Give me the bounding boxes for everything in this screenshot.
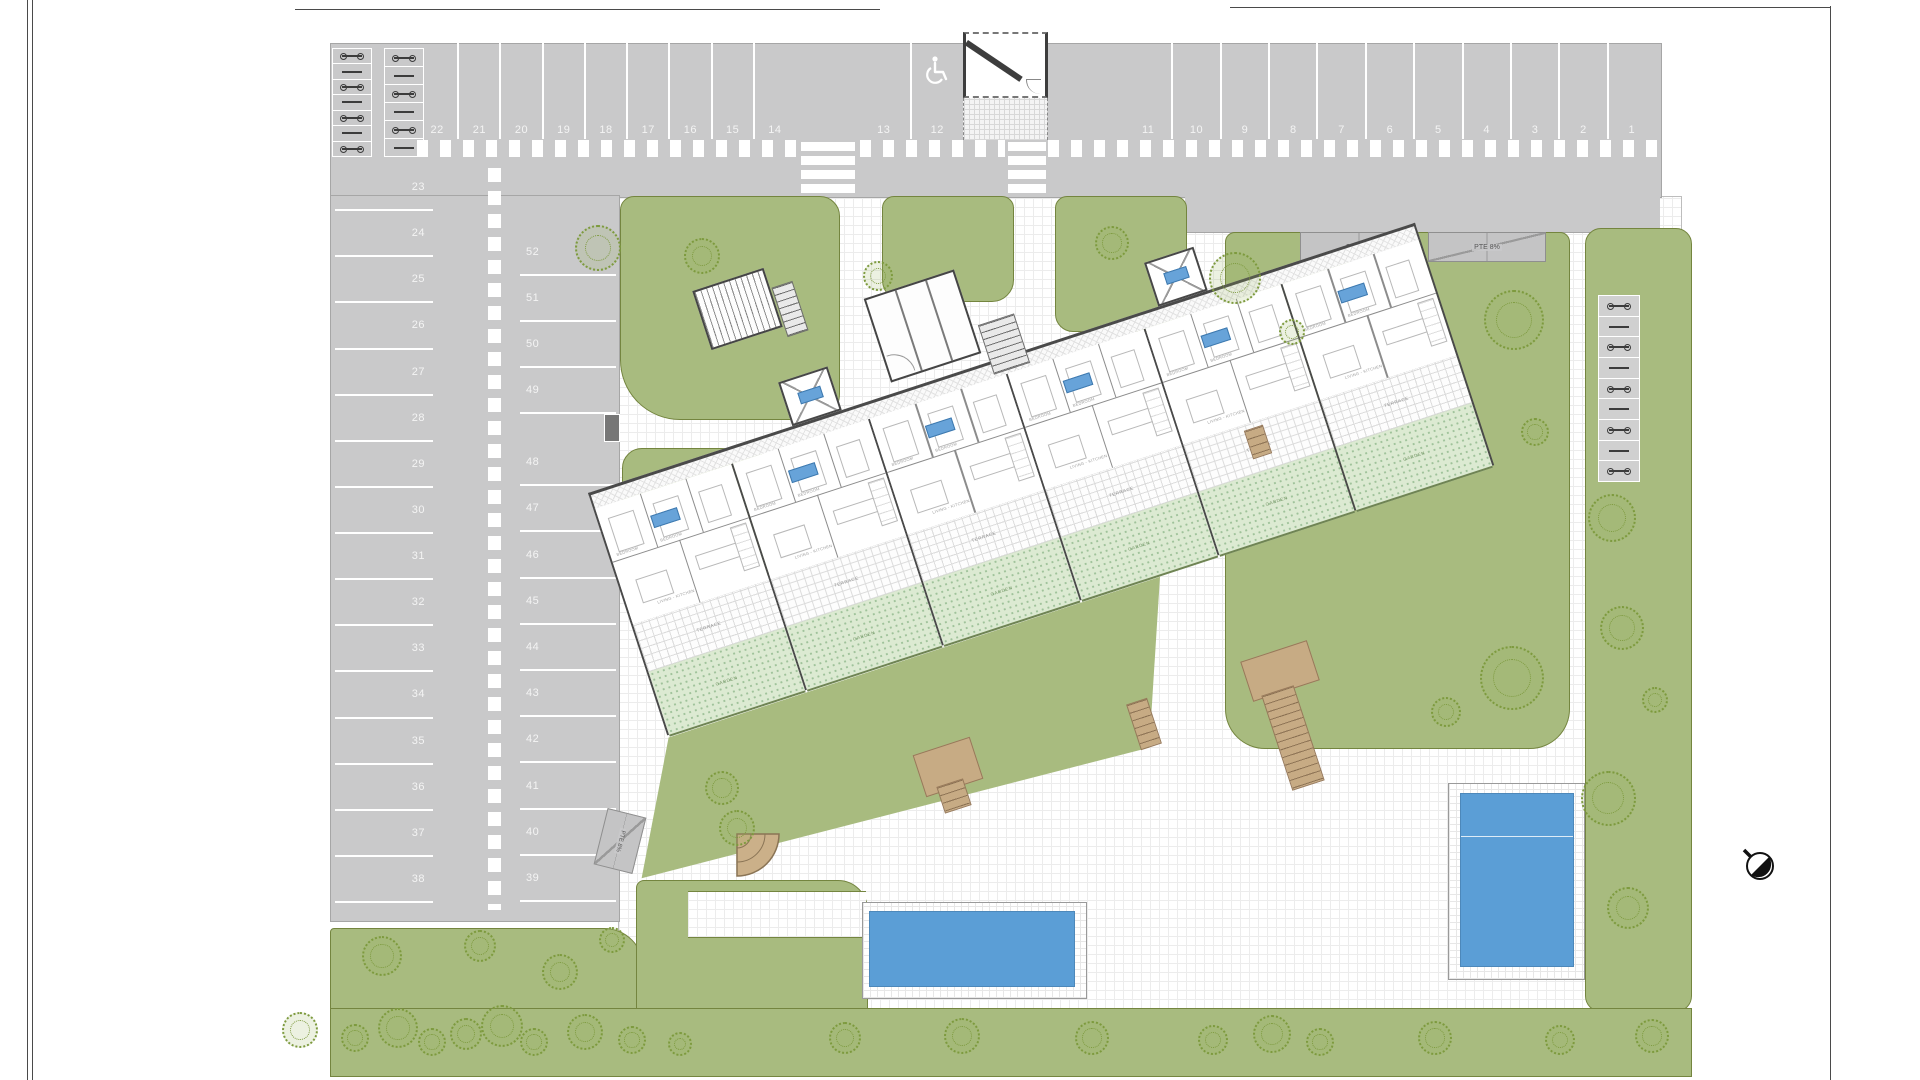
parking-space: 23 xyxy=(335,165,433,211)
tree-icon xyxy=(1306,1028,1334,1056)
parking-space: 41 xyxy=(520,763,616,809)
tree-icon xyxy=(575,225,621,271)
plan-graphic xyxy=(1425,1028,1444,1047)
plan-graphic xyxy=(961,389,980,443)
bed-furniture xyxy=(745,465,782,508)
rack-row xyxy=(333,111,371,126)
rack-row xyxy=(1599,420,1639,441)
parking-space-number: 51 xyxy=(526,292,539,304)
bed-furniture xyxy=(883,420,920,463)
parking-space-number: 4 xyxy=(1464,124,1510,136)
tree-icon xyxy=(863,261,893,291)
tree-icon xyxy=(684,238,720,274)
parking-space: 5 xyxy=(1413,43,1461,139)
pool-2 xyxy=(1460,793,1574,967)
plan-graphic xyxy=(424,1034,439,1049)
parking-space-number: 27 xyxy=(412,366,425,378)
parking-space-number: 21 xyxy=(459,124,499,136)
parking-space-number: 28 xyxy=(412,412,425,424)
bicycle-icon xyxy=(1609,388,1629,390)
plan-graphic xyxy=(1008,142,1046,151)
parking-space-number: 23 xyxy=(412,181,425,193)
parking-space: 19 xyxy=(542,43,584,139)
parking-space-number: 7 xyxy=(1318,124,1364,136)
parking-space: 30 xyxy=(335,488,433,534)
tree-icon xyxy=(1484,290,1544,350)
parking-space-number: 37 xyxy=(412,827,425,839)
rack-row xyxy=(1599,379,1639,400)
parking-space: 29 xyxy=(335,442,433,488)
bed-furniture xyxy=(1158,330,1195,373)
plan-graphic xyxy=(935,63,946,79)
rack-row xyxy=(1599,461,1639,481)
parking-space-number: 10 xyxy=(1173,124,1219,136)
bicycle-icon xyxy=(342,117,362,119)
parking-space: 34 xyxy=(335,672,433,718)
rack-row xyxy=(333,142,371,156)
frame-top-left xyxy=(295,9,880,10)
parking-space-number: 12 xyxy=(912,124,964,136)
rack-row xyxy=(333,64,371,79)
plan-graphic xyxy=(1008,170,1046,179)
parking-space: 48 xyxy=(520,440,616,486)
tree-icon xyxy=(1600,606,1644,650)
plan-graphic xyxy=(712,778,731,797)
parking-space-number: 33 xyxy=(412,642,425,654)
plan-graphic xyxy=(1026,79,1041,94)
parking-space-number: 35 xyxy=(412,735,425,747)
tree-icon xyxy=(599,927,625,953)
parking-row-top-right: 1110987654321 xyxy=(1125,43,1655,139)
table-furniture xyxy=(1386,259,1420,298)
parking-space-number: 14 xyxy=(755,124,795,136)
parking-space-number: 32 xyxy=(412,596,425,608)
rack-row xyxy=(385,67,423,85)
plan-graphic xyxy=(1008,184,1046,193)
parking-space-number: 48 xyxy=(526,456,539,468)
parking-space-number: 40 xyxy=(526,826,539,838)
frame-right xyxy=(1830,6,1831,1080)
tree-icon xyxy=(1209,252,1261,304)
table-furniture xyxy=(973,394,1007,433)
table-furniture xyxy=(836,439,870,478)
ramp-label-2: PTE 8% xyxy=(1472,244,1502,251)
parking-space-number: 26 xyxy=(412,319,425,331)
parking-space-number: 16 xyxy=(670,124,710,136)
plan-graphic xyxy=(290,1020,311,1041)
plan-graphic xyxy=(386,1016,409,1039)
rack-mark xyxy=(394,111,414,113)
parking-space-number: 49 xyxy=(526,384,539,396)
bed-furniture xyxy=(608,510,645,553)
plan-graphic xyxy=(801,156,855,165)
parking-space: 31 xyxy=(335,534,433,580)
parking-space-number: 29 xyxy=(412,458,425,470)
parking-space-number: 1 xyxy=(1609,124,1655,136)
table-furniture xyxy=(1111,349,1145,388)
tree-icon xyxy=(618,1026,646,1054)
parking-space: 3 xyxy=(1510,43,1558,139)
bicycle-icon xyxy=(342,148,362,150)
plan-graphic xyxy=(1496,302,1532,338)
parking-space-number: 2 xyxy=(1560,124,1606,136)
table-furniture xyxy=(698,484,732,523)
plan-graphic xyxy=(1098,344,1117,398)
plan-graphic xyxy=(1373,254,1392,308)
plan-graphic xyxy=(585,235,612,262)
road-top-right-extension xyxy=(1185,194,1660,233)
garden-label: GARDEN xyxy=(1070,521,1207,570)
plan-graphic xyxy=(674,1038,687,1051)
plan-graphic xyxy=(925,280,953,360)
bicycle-icon xyxy=(1609,470,1629,472)
parking-space-number: 6 xyxy=(1367,124,1413,136)
plan-graphic xyxy=(801,142,855,151)
plan-graphic xyxy=(1261,1023,1283,1045)
parking-space: 44 xyxy=(520,625,616,671)
crosswalk-zebra-right xyxy=(1048,140,1657,157)
plan-graphic xyxy=(870,268,887,285)
parking-space-number: 41 xyxy=(526,780,539,792)
rack-row xyxy=(1599,296,1639,317)
tree-icon xyxy=(464,930,496,962)
rack-row xyxy=(333,126,371,141)
frame-left-outer xyxy=(27,0,28,1080)
parking-space-number: 39 xyxy=(526,872,539,884)
plan-graphic xyxy=(1236,299,1255,353)
rack-mark xyxy=(342,132,362,134)
rack-row xyxy=(385,139,423,156)
plan-graphic xyxy=(1285,325,1299,339)
garden-label: GARDEN xyxy=(1208,476,1345,525)
plan-graphic xyxy=(1616,896,1640,920)
rack-row xyxy=(385,103,423,121)
parking-space: 2 xyxy=(1558,43,1606,139)
site-plan: 222120191817161514 1312 1110987654321 23… xyxy=(0,0,1920,1080)
north-arrow-icon xyxy=(1740,846,1776,882)
tree-icon xyxy=(1521,418,1549,446)
tree-icon xyxy=(1545,1025,1575,1055)
parking-space: 38 xyxy=(335,857,433,903)
parking-space: 49 xyxy=(520,368,616,414)
bicycle-icon xyxy=(1609,305,1629,307)
parking-space: 20 xyxy=(499,43,541,139)
parking-space: 18 xyxy=(584,43,626,139)
parking-space-number: 3 xyxy=(1512,124,1558,136)
plan-graphic xyxy=(1205,1032,1222,1049)
parking-space-number: 45 xyxy=(526,595,539,607)
stair-core-badge xyxy=(797,386,824,405)
kiosk-apron xyxy=(963,98,1048,140)
parking-column-left: 23242526272829303132333435363738 xyxy=(335,165,433,903)
plan-graphic xyxy=(1642,1026,1661,1045)
rack-mark xyxy=(394,75,414,77)
tree-icon xyxy=(450,1018,482,1050)
rack-row xyxy=(385,121,423,139)
garden-label: GARDEN xyxy=(795,611,932,660)
rack-mark xyxy=(1609,408,1629,410)
parking-space-number: 50 xyxy=(526,338,539,350)
parking-space: 45 xyxy=(520,579,616,625)
parking-row-top-left: 222120191817161514 xyxy=(417,43,795,139)
pool-1 xyxy=(869,911,1075,987)
rack-row xyxy=(1599,317,1639,338)
rack-mark xyxy=(342,101,362,103)
plan-graphic xyxy=(1438,704,1455,721)
rack-row xyxy=(1599,441,1639,462)
bicycle-icon xyxy=(394,93,414,95)
bed-furniture xyxy=(1020,375,1057,418)
plan-graphic xyxy=(370,944,393,967)
rack-mark xyxy=(342,71,362,73)
plan-graphic xyxy=(727,818,748,839)
wheelchair-icon xyxy=(924,55,950,85)
garden-label: GARDEN xyxy=(658,656,795,705)
plan-graphic xyxy=(1082,1028,1101,1047)
plan-graphic xyxy=(1527,424,1542,439)
rack-row xyxy=(333,95,371,110)
plan-graphic xyxy=(575,1022,596,1043)
plan-graphic xyxy=(490,1014,514,1038)
tree-icon xyxy=(418,1028,446,1056)
tree-icon xyxy=(1642,687,1668,713)
parking-space-number: 44 xyxy=(526,641,539,653)
tree-icon xyxy=(668,1032,692,1056)
plan-graphic xyxy=(1102,233,1121,252)
parking-space-number: 8 xyxy=(1270,124,1316,136)
plan-graphic xyxy=(1609,615,1635,641)
parking-space: 50 xyxy=(520,322,616,368)
parking-space: 14 xyxy=(753,43,795,139)
rack-mark xyxy=(1609,367,1629,369)
plan-graphic xyxy=(952,1026,973,1047)
parking-space-number: 18 xyxy=(586,124,626,136)
tree-icon xyxy=(944,1018,980,1054)
tree-icon xyxy=(1635,1019,1669,1053)
tree-icon xyxy=(1480,646,1544,710)
tree-icon xyxy=(1431,697,1461,727)
parking-space: 43 xyxy=(520,671,616,717)
plan-graphic xyxy=(347,1030,362,1045)
bicycle-icon xyxy=(1609,429,1629,431)
tree-icon xyxy=(481,1005,523,1047)
plan-graphic xyxy=(1592,782,1625,815)
plan-graphic xyxy=(526,1034,541,1049)
garden-label: GARDEN xyxy=(1345,431,1482,480)
parking-space: 1 xyxy=(1607,43,1655,139)
garden-label: GARDEN xyxy=(933,566,1070,615)
parking-space-number: 24 xyxy=(412,227,425,239)
rack-mark xyxy=(1609,326,1629,328)
parking-space: 32 xyxy=(335,580,433,626)
parking-space: 33 xyxy=(335,626,433,672)
plan-graphic xyxy=(692,246,713,267)
tree-icon xyxy=(378,1008,418,1048)
tree-icon xyxy=(1095,226,1129,260)
tree-icon xyxy=(341,1024,369,1052)
bicycle-icon xyxy=(342,55,362,57)
crosswalk-zebra-mid xyxy=(860,140,1005,157)
tree-icon xyxy=(520,1028,548,1056)
plan-graphic xyxy=(1461,836,1573,837)
parking-space: 42 xyxy=(520,717,616,763)
parking-space: 24 xyxy=(335,211,433,257)
plan-graphic xyxy=(1008,156,1046,165)
plan-graphic xyxy=(963,32,1048,98)
parking-space-number: 30 xyxy=(412,504,425,516)
tree-icon xyxy=(1253,1015,1291,1053)
bike-rack-column-1 xyxy=(332,48,372,157)
parking-space-number: 9 xyxy=(1222,124,1268,136)
table-furniture xyxy=(1248,304,1282,343)
parking-space-number: 52 xyxy=(526,246,539,258)
parking-space: 6 xyxy=(1365,43,1413,139)
parking-space: 7 xyxy=(1316,43,1364,139)
parking-space-number: 25 xyxy=(412,273,425,285)
bicycle-icon xyxy=(394,129,414,131)
plan-graphic xyxy=(605,933,619,947)
plan-graphic xyxy=(823,434,842,488)
rack-row xyxy=(333,49,371,64)
plan-graphic xyxy=(624,1032,639,1047)
road-centre-dashed-line xyxy=(488,168,501,910)
parking-space: 16 xyxy=(668,43,710,139)
parking-space-number: 38 xyxy=(412,873,425,885)
tree-icon xyxy=(1588,494,1636,542)
parking-row-top-mid: 1312 xyxy=(858,43,963,139)
parking-space-number: 34 xyxy=(412,688,425,700)
parking-space: 4 xyxy=(1462,43,1510,139)
bike-rack-column-2 xyxy=(384,48,424,157)
plan-graphic xyxy=(886,349,915,378)
parking-space-number: 36 xyxy=(412,781,425,793)
crosswalk-zebra-left xyxy=(417,140,797,157)
parking-space-number: 5 xyxy=(1415,124,1461,136)
plan-graphic xyxy=(1648,693,1662,707)
parking-space-number: 43 xyxy=(526,687,539,699)
parking-space: 21 xyxy=(457,43,499,139)
tree-icon xyxy=(1581,771,1636,826)
plan-graphic xyxy=(1493,659,1531,697)
parking-space-number: 46 xyxy=(526,549,539,561)
bed-furniture xyxy=(1295,285,1332,328)
tree-icon xyxy=(282,1012,318,1048)
plan-graphic xyxy=(836,1029,854,1047)
tree-icon xyxy=(567,1014,603,1050)
rack-mark xyxy=(1609,450,1629,452)
tree-icon xyxy=(829,1022,861,1054)
parking-space: 10 xyxy=(1171,43,1219,139)
tree-icon xyxy=(705,771,739,805)
parking-space: 36 xyxy=(335,765,433,811)
tree-icon xyxy=(1075,1021,1109,1055)
rack-mark xyxy=(394,147,414,149)
parking-space: 26 xyxy=(335,303,433,349)
frame-left-inner xyxy=(32,0,33,1080)
barrier-gate xyxy=(604,414,620,442)
kiosk-ramp xyxy=(965,40,1023,82)
parking-space: 27 xyxy=(335,350,433,396)
plan-graphic xyxy=(1552,1032,1569,1049)
parking-space: 12 xyxy=(910,43,964,139)
ramp-label-3: PTE 8% xyxy=(614,828,626,855)
parking-space: 9 xyxy=(1220,43,1268,139)
plan-graphic xyxy=(1220,263,1251,294)
tree-icon xyxy=(1279,319,1305,345)
rack-row xyxy=(1599,358,1639,379)
bicycle-icon xyxy=(394,57,414,59)
parking-space-number: 31 xyxy=(412,550,425,562)
parking-space: 11 xyxy=(1125,43,1171,139)
parking-space-number: 13 xyxy=(858,124,910,136)
rack-row xyxy=(1599,337,1639,358)
tree-icon xyxy=(1418,1021,1452,1055)
plan-graphic xyxy=(457,1025,475,1043)
parking-space: 37 xyxy=(335,811,433,857)
parking-space-number: 11 xyxy=(1125,124,1171,136)
parking-space: 51 xyxy=(520,276,616,322)
tree-icon xyxy=(1607,887,1649,929)
plan-graphic xyxy=(801,170,855,179)
moto-stall-column xyxy=(1598,295,1640,482)
path-to-pool xyxy=(688,891,866,938)
parking-space-number: 20 xyxy=(501,124,541,136)
tree-icon xyxy=(542,954,578,990)
parking-space: 8 xyxy=(1268,43,1316,139)
parking-space: 35 xyxy=(335,719,433,765)
parking-space-number: 15 xyxy=(713,124,753,136)
parking-space-number: 17 xyxy=(628,124,668,136)
parking-space: 25 xyxy=(335,257,433,303)
plan-graphic xyxy=(1312,1034,1327,1049)
rack-row xyxy=(385,85,423,103)
bicycle-icon xyxy=(1609,346,1629,348)
tree-icon xyxy=(362,936,402,976)
plan-graphic xyxy=(933,56,938,61)
parking-space-number: 19 xyxy=(544,124,584,136)
frame-top-right xyxy=(1230,7,1830,8)
parking-space: 17 xyxy=(626,43,668,139)
parking-space-number: 42 xyxy=(526,733,539,745)
rack-row xyxy=(333,80,371,95)
ramp-east-2: PTE 8% xyxy=(1428,232,1546,262)
stair-core-badge xyxy=(1163,266,1190,285)
bicycle-icon xyxy=(342,86,362,88)
parking-space: 46 xyxy=(520,532,616,578)
tree-icon xyxy=(719,810,755,846)
plan-graphic xyxy=(550,962,571,983)
parking-space: 28 xyxy=(335,396,433,442)
plan-graphic xyxy=(471,937,489,955)
plan-graphic xyxy=(1598,504,1626,532)
parking-space: 15 xyxy=(711,43,753,139)
plan-graphic xyxy=(685,479,704,533)
rack-row xyxy=(385,49,423,67)
tree-icon xyxy=(1198,1025,1228,1055)
parking-space-number: 47 xyxy=(526,502,539,514)
plan-graphic xyxy=(801,184,855,193)
rack-row xyxy=(1599,399,1639,420)
parking-space: 13 xyxy=(858,43,910,139)
